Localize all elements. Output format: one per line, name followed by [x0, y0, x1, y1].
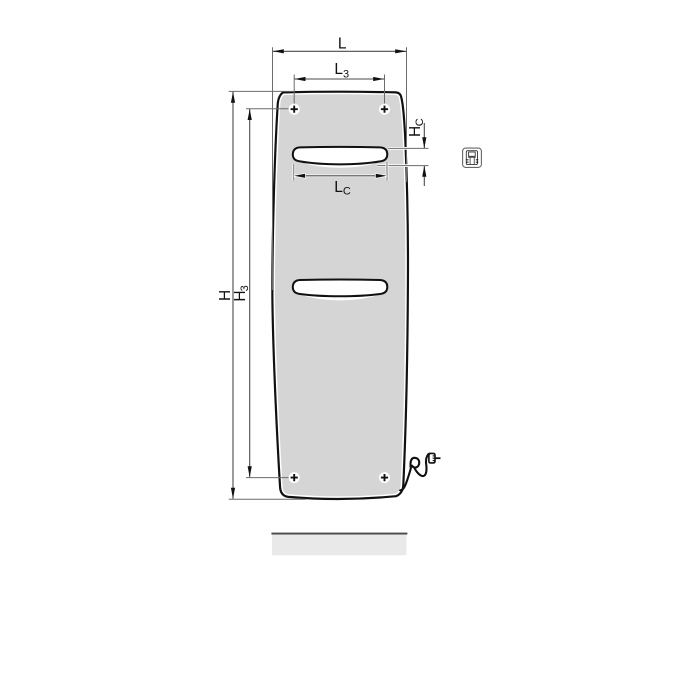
svg-text:L: L — [338, 35, 347, 52]
